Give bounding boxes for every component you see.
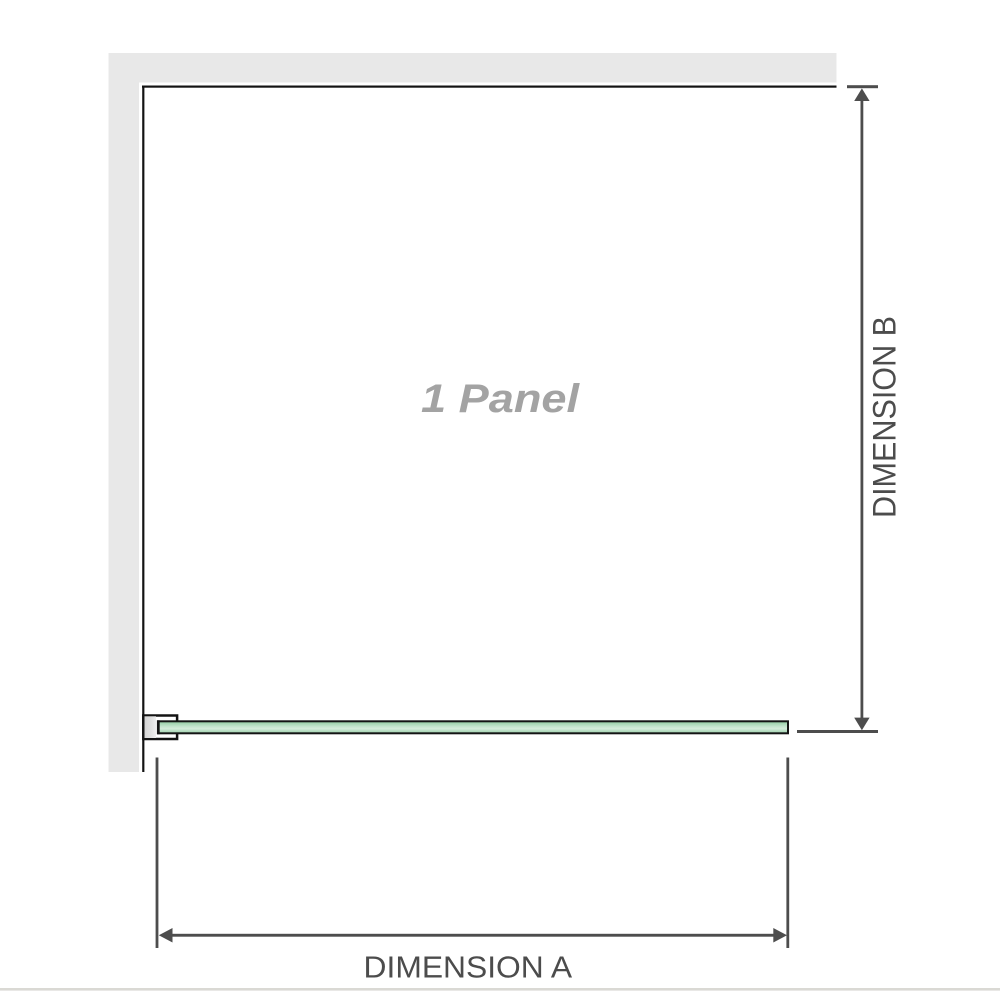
- svg-text:DIMENSION B: DIMENSION B: [866, 316, 902, 518]
- svg-text:1 Panel: 1 Panel: [421, 377, 580, 421]
- svg-text:DIMENSION A: DIMENSION A: [364, 951, 573, 985]
